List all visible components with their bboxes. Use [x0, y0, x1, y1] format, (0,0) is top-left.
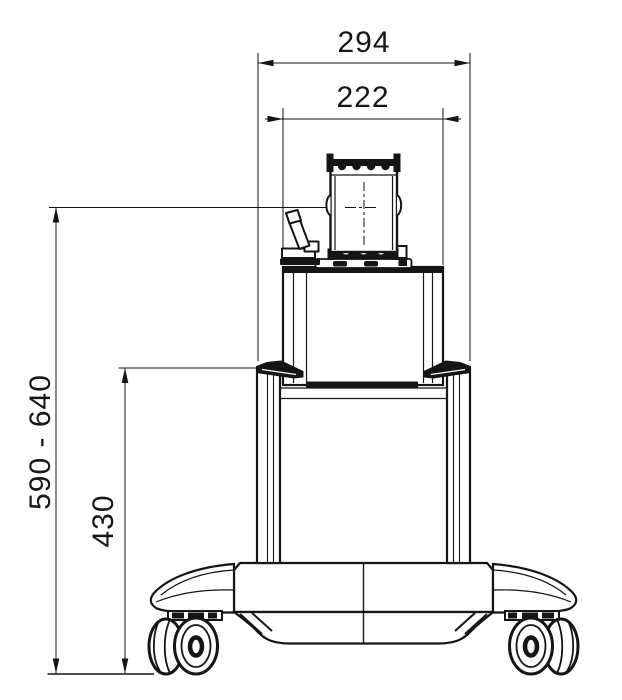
head-unit: [326, 154, 401, 261]
mount-plate: [316, 259, 412, 268]
dimension-222-arrow-right: [443, 116, 459, 123]
inner-column-bottom-bar: [306, 382, 418, 389]
caster-left: [149, 611, 222, 674]
dimension-294-label: 294: [337, 26, 390, 59]
head-ear-left: [326, 195, 330, 216]
head-ear-right: [397, 195, 401, 216]
dimension-430: 430: [87, 368, 128, 674]
mount-clip-pad: [399, 258, 408, 266]
dimension-294: 294: [258, 26, 470, 66]
mount-plate-foot-right: [364, 261, 378, 267]
dimension-222: 222: [265, 81, 461, 122]
clamp-lever: [280, 210, 320, 265]
dimension-294-arrow-right: [455, 60, 471, 67]
lever-base-strip: [280, 259, 320, 266]
inner-column: [283, 266, 443, 388]
outer-column-right-rail: [447, 370, 470, 563]
outer-column-back-lines: [280, 388, 447, 399]
dimension-430-label: 430: [87, 494, 120, 547]
dimension-222-label: 222: [336, 81, 389, 114]
technical-drawing-canvas: 294 222 590 - 640 430: [0, 0, 622, 700]
lever-knob: [286, 210, 301, 224]
outer-column-left-rail: [257, 370, 280, 563]
dimension-430-arrow-bottom: [122, 659, 129, 674]
outer-column: [257, 370, 470, 563]
dimension-430-arrow-top: [122, 368, 129, 383]
dimension-294-arrow-left: [258, 60, 274, 67]
dimension-590-640-label: 590 - 640: [24, 374, 57, 510]
mount-plate-foot-left: [333, 261, 347, 267]
caster-right-hub: [525, 638, 537, 656]
caster-left-hub: [190, 638, 202, 656]
dimension-222-arrow-left: [268, 116, 284, 123]
drawing-page: 294 222 590 - 640 430: [0, 0, 622, 700]
caster-right: [505, 611, 578, 674]
dimension-590-640-arrow-top: [53, 208, 60, 223]
dimension-590-640-arrow-bottom: [53, 659, 60, 674]
dimension-590-640: 590 - 640: [24, 208, 59, 674]
